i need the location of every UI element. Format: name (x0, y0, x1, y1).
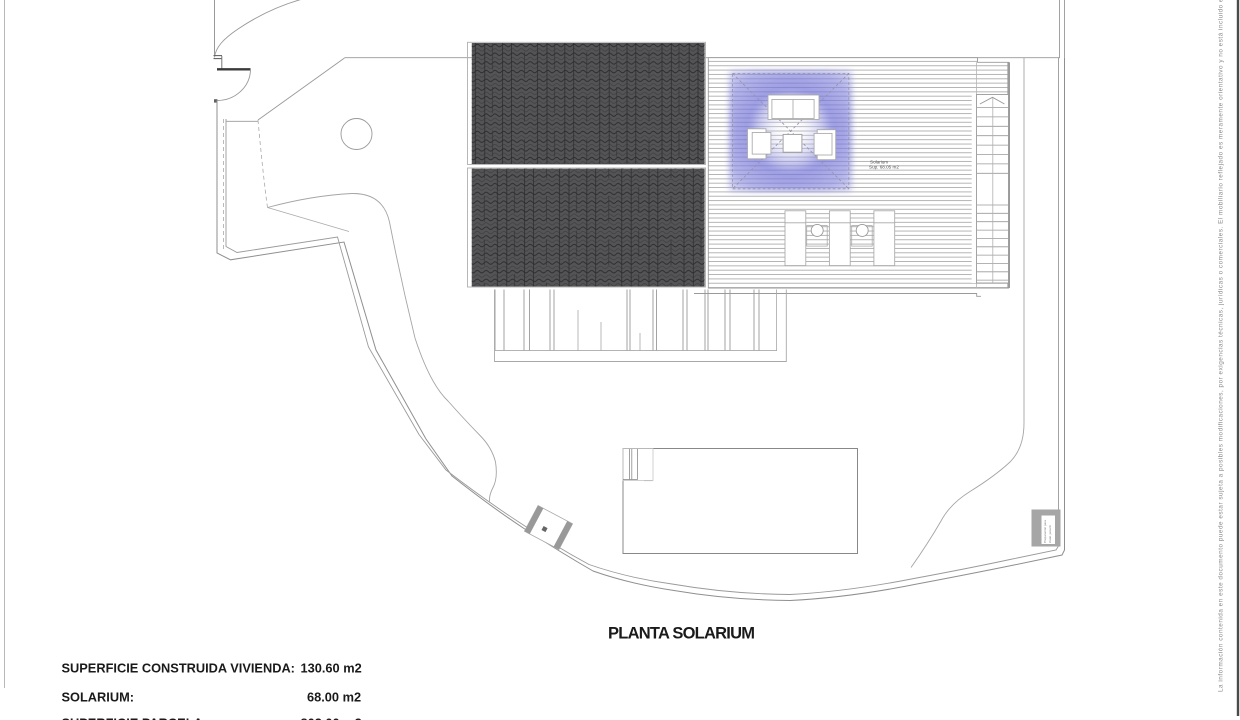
svg-text:130.60 m2: 130.60 m2 (301, 660, 362, 675)
svg-text:SUPERFICIE CONSTRUIDA VIVIENDA: SUPERFICIE CONSTRUIDA VIVIENDA: (62, 660, 295, 675)
svg-text:instal. jacuzzi: instal. jacuzzi (1048, 525, 1052, 543)
svg-text:PLANTA SOLARIUM: PLANTA SOLARIUM (608, 625, 755, 643)
svg-text:Preparación para: Preparación para (1043, 520, 1047, 543)
svg-text:68.00 m2: 68.00 m2 (307, 690, 361, 705)
svg-text:802.00 m2: 802.00 m2 (301, 716, 362, 720)
svg-text:SOLARIUM:: SOLARIUM: (62, 690, 135, 705)
svg-text:Sup. 68.05 m2: Sup. 68.05 m2 (869, 165, 899, 170)
svg-text:SUPERFICIE PARCELA:: SUPERFICIE PARCELA: (62, 716, 208, 720)
svg-text:La información contenida en es: La información contenida en este documen… (1218, 0, 1225, 692)
